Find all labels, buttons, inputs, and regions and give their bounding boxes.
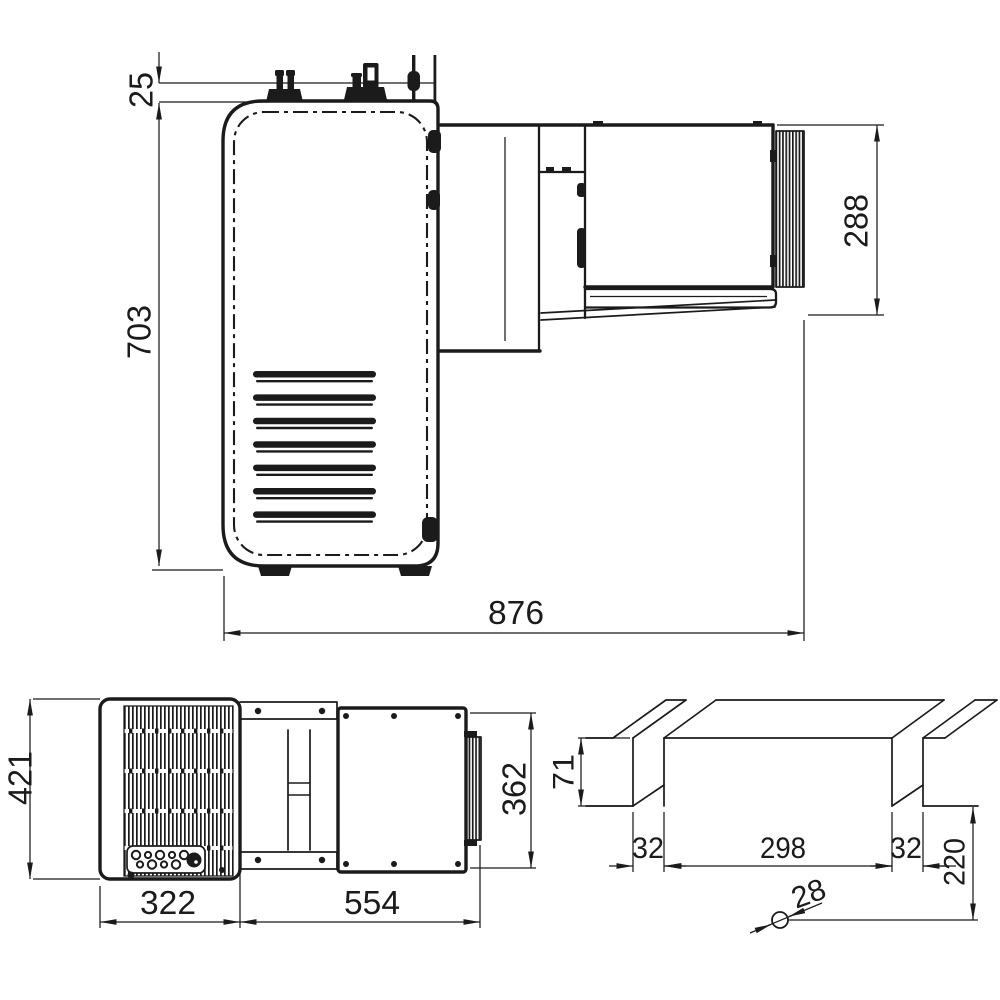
dim-703-label: 703: [121, 305, 158, 359]
dim-32-left-label: 32: [632, 832, 664, 865]
connector-1: [266, 70, 303, 102]
dim-220-label: 220: [939, 838, 972, 886]
evaporator-section: [440, 121, 804, 351]
dim-25-label: 25: [123, 72, 160, 108]
drawing-canvas: 25 703 288 876: [0, 0, 1000, 1000]
main-gland: [187, 853, 202, 868]
evap-stub-1: [577, 183, 586, 197]
dim-876-label: 876: [488, 594, 544, 631]
corner-pin: [434, 55, 437, 102]
louver-grille: [253, 371, 376, 523]
evap-box: [585, 125, 773, 287]
rear-evap-box: [338, 708, 466, 872]
rear-view: 421 362 322 554: [2, 699, 537, 928]
dim-554-label: 554: [344, 884, 400, 921]
side-view: 25 703 288 876: [121, 52, 885, 641]
rear-foot-right: [219, 867, 225, 873]
connector-3: [408, 55, 421, 102]
rear-foot-left: [128, 872, 135, 879]
screw-collar: [770, 131, 804, 287]
mounting-rails: [240, 702, 337, 869]
rear-screw-collar: [464, 731, 481, 846]
technical-drawing: 25 703 288 876: [0, 0, 1000, 1000]
foot-right: [398, 566, 432, 576]
cable-gland-panel: [127, 846, 205, 873]
dim-32-right-label: 32: [890, 832, 922, 865]
cutout-geometry: [586, 700, 997, 806]
evap-stub-2: [577, 228, 586, 268]
rail-screws: [255, 708, 325, 863]
rear-view-dimensions: 421 362 322 554: [2, 699, 537, 928]
pipe-stub-1: [428, 130, 441, 153]
dim-362-label: 362: [496, 762, 533, 816]
dim-71-label: 71: [548, 754, 581, 790]
drain-slant-2: [541, 307, 775, 320]
cutout-dimensions: 71 32 298 32 220 28: [548, 738, 979, 933]
top-valve-connectors: [266, 55, 436, 102]
dim-28-label: 28: [787, 873, 830, 916]
dim-288-label: 288: [838, 194, 875, 248]
dim-298-label: 298: [760, 832, 806, 865]
pipe-stub-2: [428, 190, 440, 210]
pipe-stub-3: [422, 517, 438, 542]
foot-left: [258, 566, 292, 576]
housing-outline: [223, 101, 438, 566]
dim-421-label: 421: [2, 751, 39, 805]
evap-box-screws: [343, 713, 461, 867]
dim-322-label: 322: [140, 884, 196, 921]
wall-cutout-view: 71 32 298 32 220 28: [548, 700, 998, 933]
